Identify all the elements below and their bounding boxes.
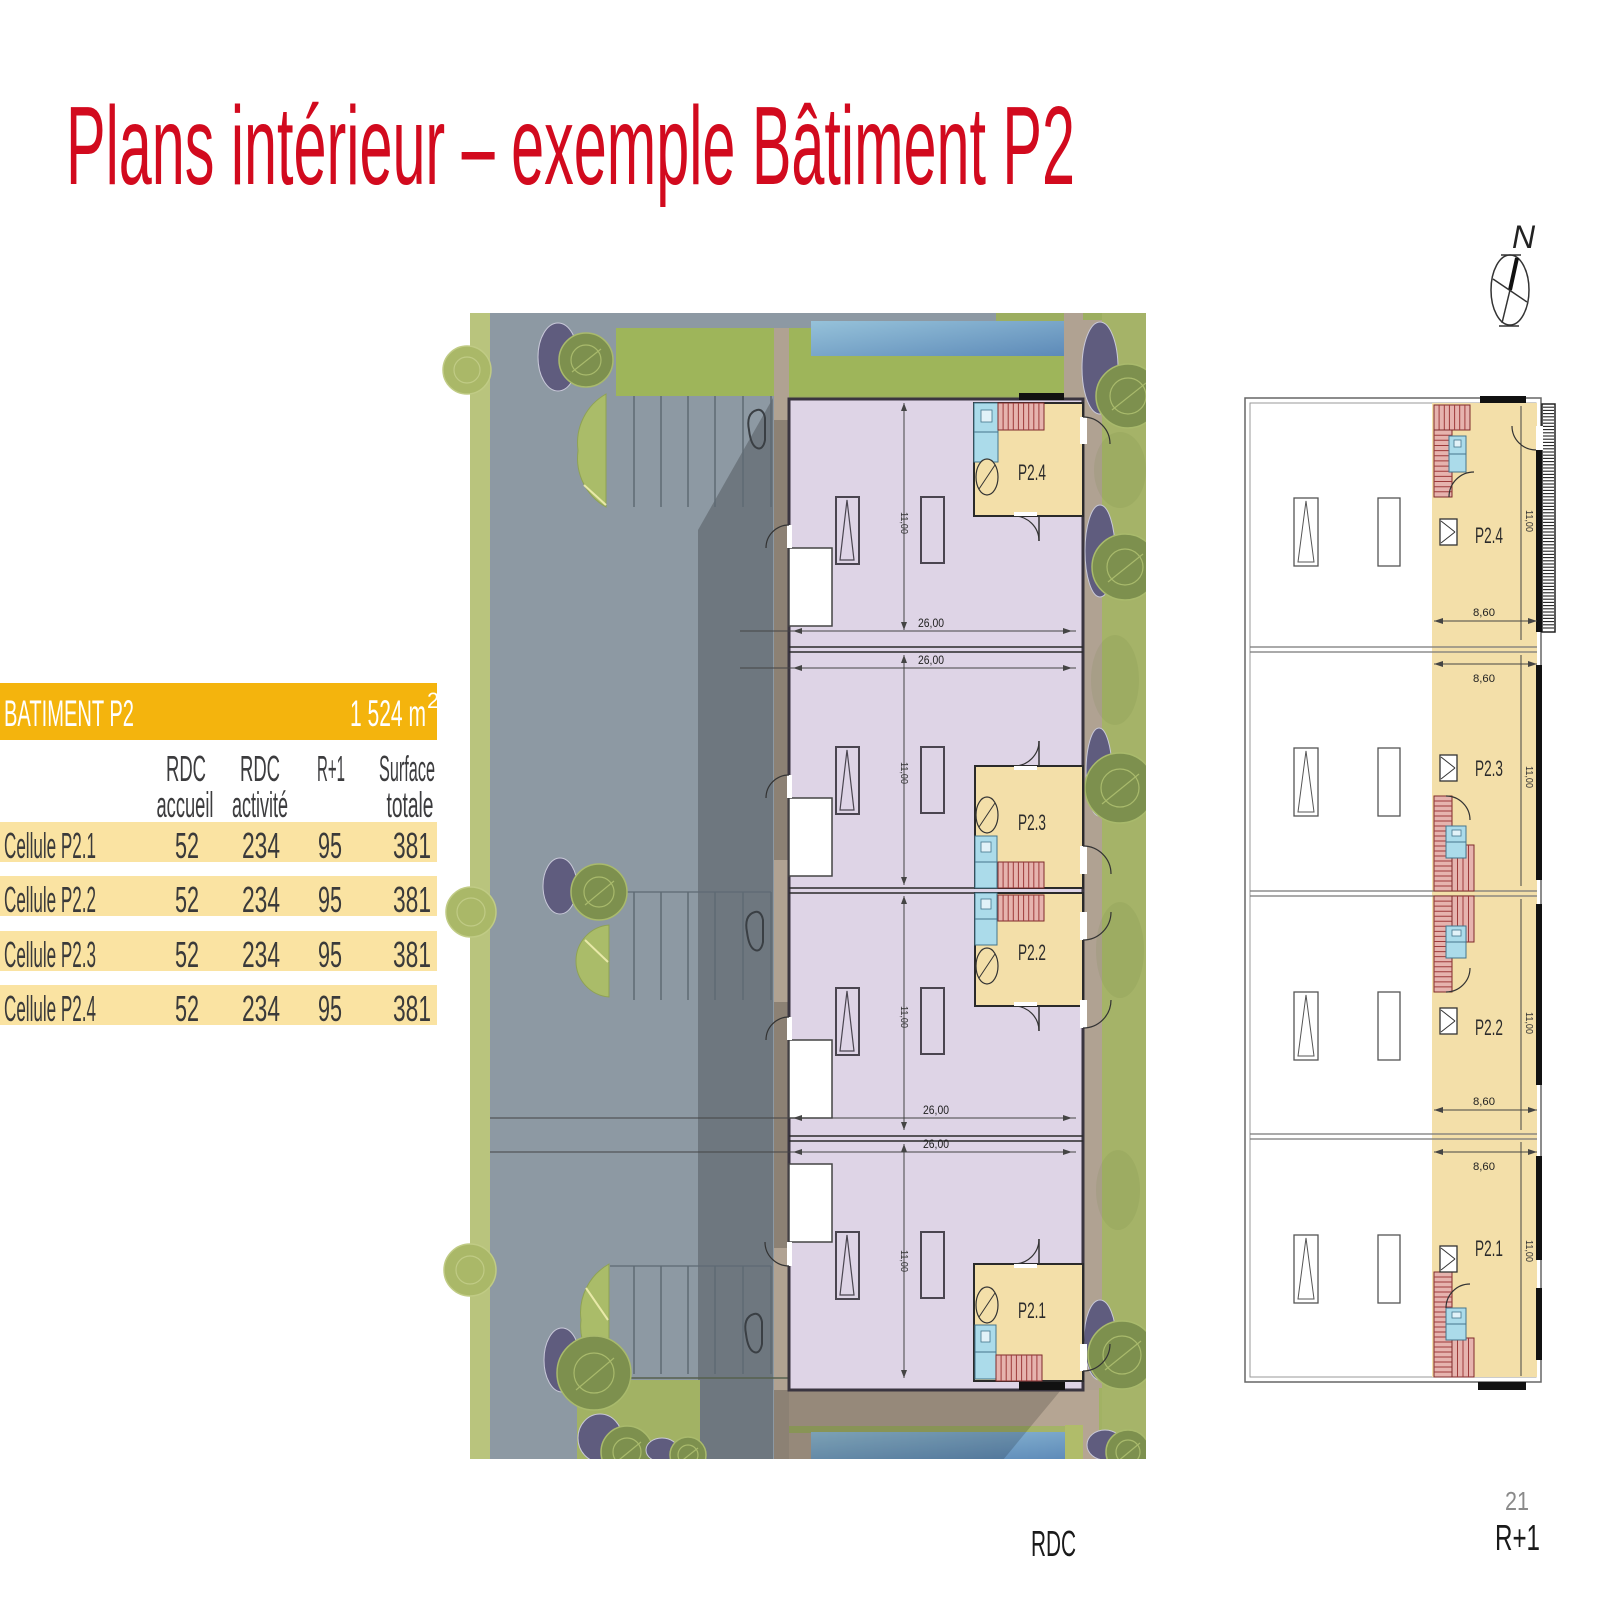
svg-text:totale: totale bbox=[387, 784, 434, 825]
svg-text:P2.1: P2.1 bbox=[1475, 1236, 1503, 1261]
svg-text:P2.4: P2.4 bbox=[1018, 460, 1046, 485]
svg-text:11,00: 11,00 bbox=[1523, 510, 1534, 532]
svg-text:26,00: 26,00 bbox=[923, 1137, 949, 1151]
svg-text:52: 52 bbox=[175, 988, 199, 1029]
svg-text:R+1: R+1 bbox=[317, 748, 345, 789]
svg-text:234: 234 bbox=[242, 879, 280, 920]
svg-text:1 524 m: 1 524 m bbox=[350, 693, 426, 734]
svg-text:2: 2 bbox=[427, 688, 439, 713]
svg-text:234: 234 bbox=[242, 934, 280, 975]
svg-text:P2.2: P2.2 bbox=[1018, 940, 1046, 965]
svg-text:N: N bbox=[1512, 219, 1536, 255]
svg-text:52: 52 bbox=[175, 825, 199, 866]
svg-text:accueil: accueil bbox=[157, 784, 214, 825]
svg-text:P2.1: P2.1 bbox=[1018, 1298, 1046, 1323]
svg-text:21: 21 bbox=[1505, 1486, 1529, 1516]
svg-text:Cellule P2.1: Cellule P2.1 bbox=[4, 825, 96, 866]
svg-text:P2.3: P2.3 bbox=[1475, 756, 1503, 781]
svg-text:Cellule P2.2: Cellule P2.2 bbox=[4, 879, 96, 920]
svg-text:52: 52 bbox=[175, 879, 199, 920]
svg-text:Surface: Surface bbox=[379, 748, 435, 789]
svg-text:11,00: 11,00 bbox=[898, 1250, 909, 1272]
svg-text:11,00: 11,00 bbox=[898, 762, 909, 784]
svg-text:234: 234 bbox=[242, 825, 280, 866]
svg-text:RDC: RDC bbox=[240, 748, 280, 789]
svg-text:381: 381 bbox=[393, 879, 431, 920]
svg-text:11,00: 11,00 bbox=[1523, 766, 1534, 788]
svg-text:95: 95 bbox=[318, 988, 342, 1029]
svg-text:381: 381 bbox=[393, 988, 431, 1029]
svg-text:8,60: 8,60 bbox=[1473, 1096, 1495, 1108]
svg-text:R+1: R+1 bbox=[1495, 1517, 1540, 1558]
svg-text:Cellule P2.4: Cellule P2.4 bbox=[4, 988, 96, 1029]
svg-text:234: 234 bbox=[242, 988, 280, 1029]
svg-text:8,60: 8,60 bbox=[1473, 607, 1495, 619]
svg-text:95: 95 bbox=[318, 934, 342, 975]
svg-text:activité: activité bbox=[232, 784, 288, 825]
svg-text:381: 381 bbox=[393, 934, 431, 975]
svg-text:11,00: 11,00 bbox=[898, 1006, 909, 1028]
svg-text:Cellule P2.3: Cellule P2.3 bbox=[4, 934, 96, 975]
svg-text:8,60: 8,60 bbox=[1473, 1161, 1495, 1173]
svg-text:P2.2: P2.2 bbox=[1475, 1015, 1503, 1040]
svg-text:11,00: 11,00 bbox=[1523, 1012, 1534, 1034]
svg-text:26,00: 26,00 bbox=[918, 653, 944, 667]
svg-text:26,00: 26,00 bbox=[918, 616, 944, 630]
svg-text:BATIMENT P2: BATIMENT P2 bbox=[4, 693, 134, 734]
svg-text:52: 52 bbox=[175, 934, 199, 975]
svg-text:95: 95 bbox=[318, 825, 342, 866]
svg-text:26,00: 26,00 bbox=[923, 1103, 949, 1117]
svg-text:11,00: 11,00 bbox=[898, 512, 909, 534]
svg-text:Plans intérieur – exemple Bâti: Plans intérieur – exemple Bâtiment P2 bbox=[66, 84, 1075, 208]
svg-text:RDC: RDC bbox=[1031, 1523, 1076, 1564]
svg-text:95: 95 bbox=[318, 879, 342, 920]
svg-text:P2.3: P2.3 bbox=[1018, 810, 1046, 835]
svg-text:P2.4: P2.4 bbox=[1475, 523, 1503, 548]
svg-text:8,60: 8,60 bbox=[1473, 673, 1495, 685]
svg-text:11,00: 11,00 bbox=[1523, 1240, 1534, 1262]
svg-text:381: 381 bbox=[393, 825, 431, 866]
svg-text:RDC: RDC bbox=[166, 748, 206, 789]
